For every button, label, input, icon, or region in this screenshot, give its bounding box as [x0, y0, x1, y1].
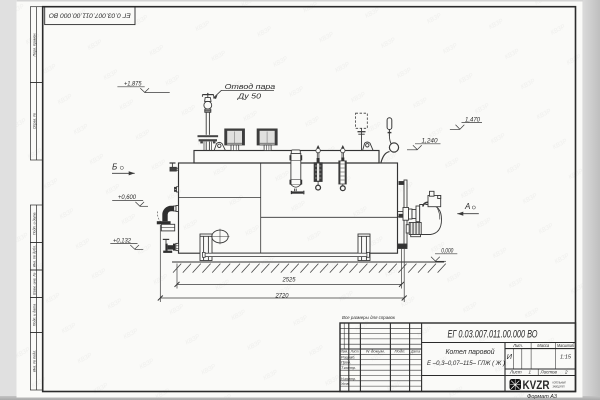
- svg-text:KVZR: KVZR: [523, 378, 550, 392]
- svg-text:Отвод пара: Отвод пара: [225, 82, 276, 91]
- svg-text:Котел паровой: Котел паровой: [446, 348, 495, 356]
- svg-text:Все размеры для справок: Все размеры для справок: [342, 315, 396, 321]
- svg-text:И: И: [507, 352, 513, 361]
- svg-text:Лит.: Лит.: [512, 343, 523, 348]
- svg-text:ЕГ 0.03.007.011.00.000 ВО: ЕГ 0.03.007.011.00.000 ВО: [49, 11, 131, 18]
- svg-text:Лист: Лист: [350, 350, 359, 354]
- svg-text:Н.контр.: Н.контр.: [341, 377, 356, 381]
- svg-text:Пров.: Пров.: [341, 361, 351, 365]
- svg-text:Масштаб: Масштаб: [557, 343, 575, 348]
- svg-text:Разраб.: Разраб.: [341, 355, 356, 359]
- svg-text:2: 2: [564, 370, 568, 375]
- svg-text:Б: Б: [112, 162, 117, 171]
- svg-text:Подп.: Подп.: [395, 350, 406, 354]
- svg-text:Утв.: Утв.: [341, 382, 350, 386]
- svg-text:N докум.: N докум.: [366, 350, 385, 354]
- svg-text:Подп. и дата: Подп. и дата: [32, 304, 36, 327]
- svg-text:ЗАВОД РЭП: ЗАВОД РЭП: [553, 385, 566, 389]
- svg-text:2720: 2720: [275, 293, 289, 300]
- svg-text:Формат А3: Формат А3: [527, 394, 558, 400]
- svg-text:+0,132: +0,132: [113, 238, 132, 244]
- svg-text:Взам. инв. №: Взам. инв. №: [32, 272, 36, 294]
- svg-text:Листов: Листов: [540, 370, 558, 375]
- svg-text:А: А: [464, 202, 470, 211]
- svg-text:ЕГ 0.03.007.011.00.000 ВО: ЕГ 0.03.007.011.00.000 ВО: [448, 329, 538, 341]
- svg-text:Изм.: Изм.: [340, 350, 348, 354]
- svg-text:Е –0,3–0,07–115– ГЛЖ ( Ж ): Е –0,3–0,07–115– ГЛЖ ( Ж ): [427, 360, 505, 367]
- svg-text:Лист: Лист: [509, 370, 522, 375]
- svg-text:Т.контр.: Т.контр.: [341, 366, 356, 370]
- svg-text:Инв. № дубл.: Инв. № дубл.: [32, 245, 36, 267]
- svg-text:1,240: 1,240: [422, 139, 439, 145]
- svg-text:Инв. № подл.: Инв. № подл.: [32, 350, 36, 372]
- svg-text:2525: 2525: [282, 277, 296, 284]
- svg-text:1:15: 1:15: [560, 355, 572, 361]
- svg-text:Подп. и дата: Подп. и дата: [32, 212, 36, 235]
- svg-text:0,000: 0,000: [441, 249, 454, 255]
- svg-text:Масса: Масса: [537, 343, 550, 348]
- svg-text:Дата: Дата: [410, 350, 420, 354]
- svg-text:+0,600: +0,600: [118, 195, 137, 201]
- svg-text:Справ. №: Справ. №: [32, 113, 36, 129]
- svg-text:1,470: 1,470: [465, 117, 481, 123]
- svg-text:Перв. примен.: Перв. примен.: [32, 33, 36, 57]
- svg-text:Ду 50: Ду 50: [237, 92, 262, 101]
- svg-text:+1,875: +1,875: [124, 82, 142, 88]
